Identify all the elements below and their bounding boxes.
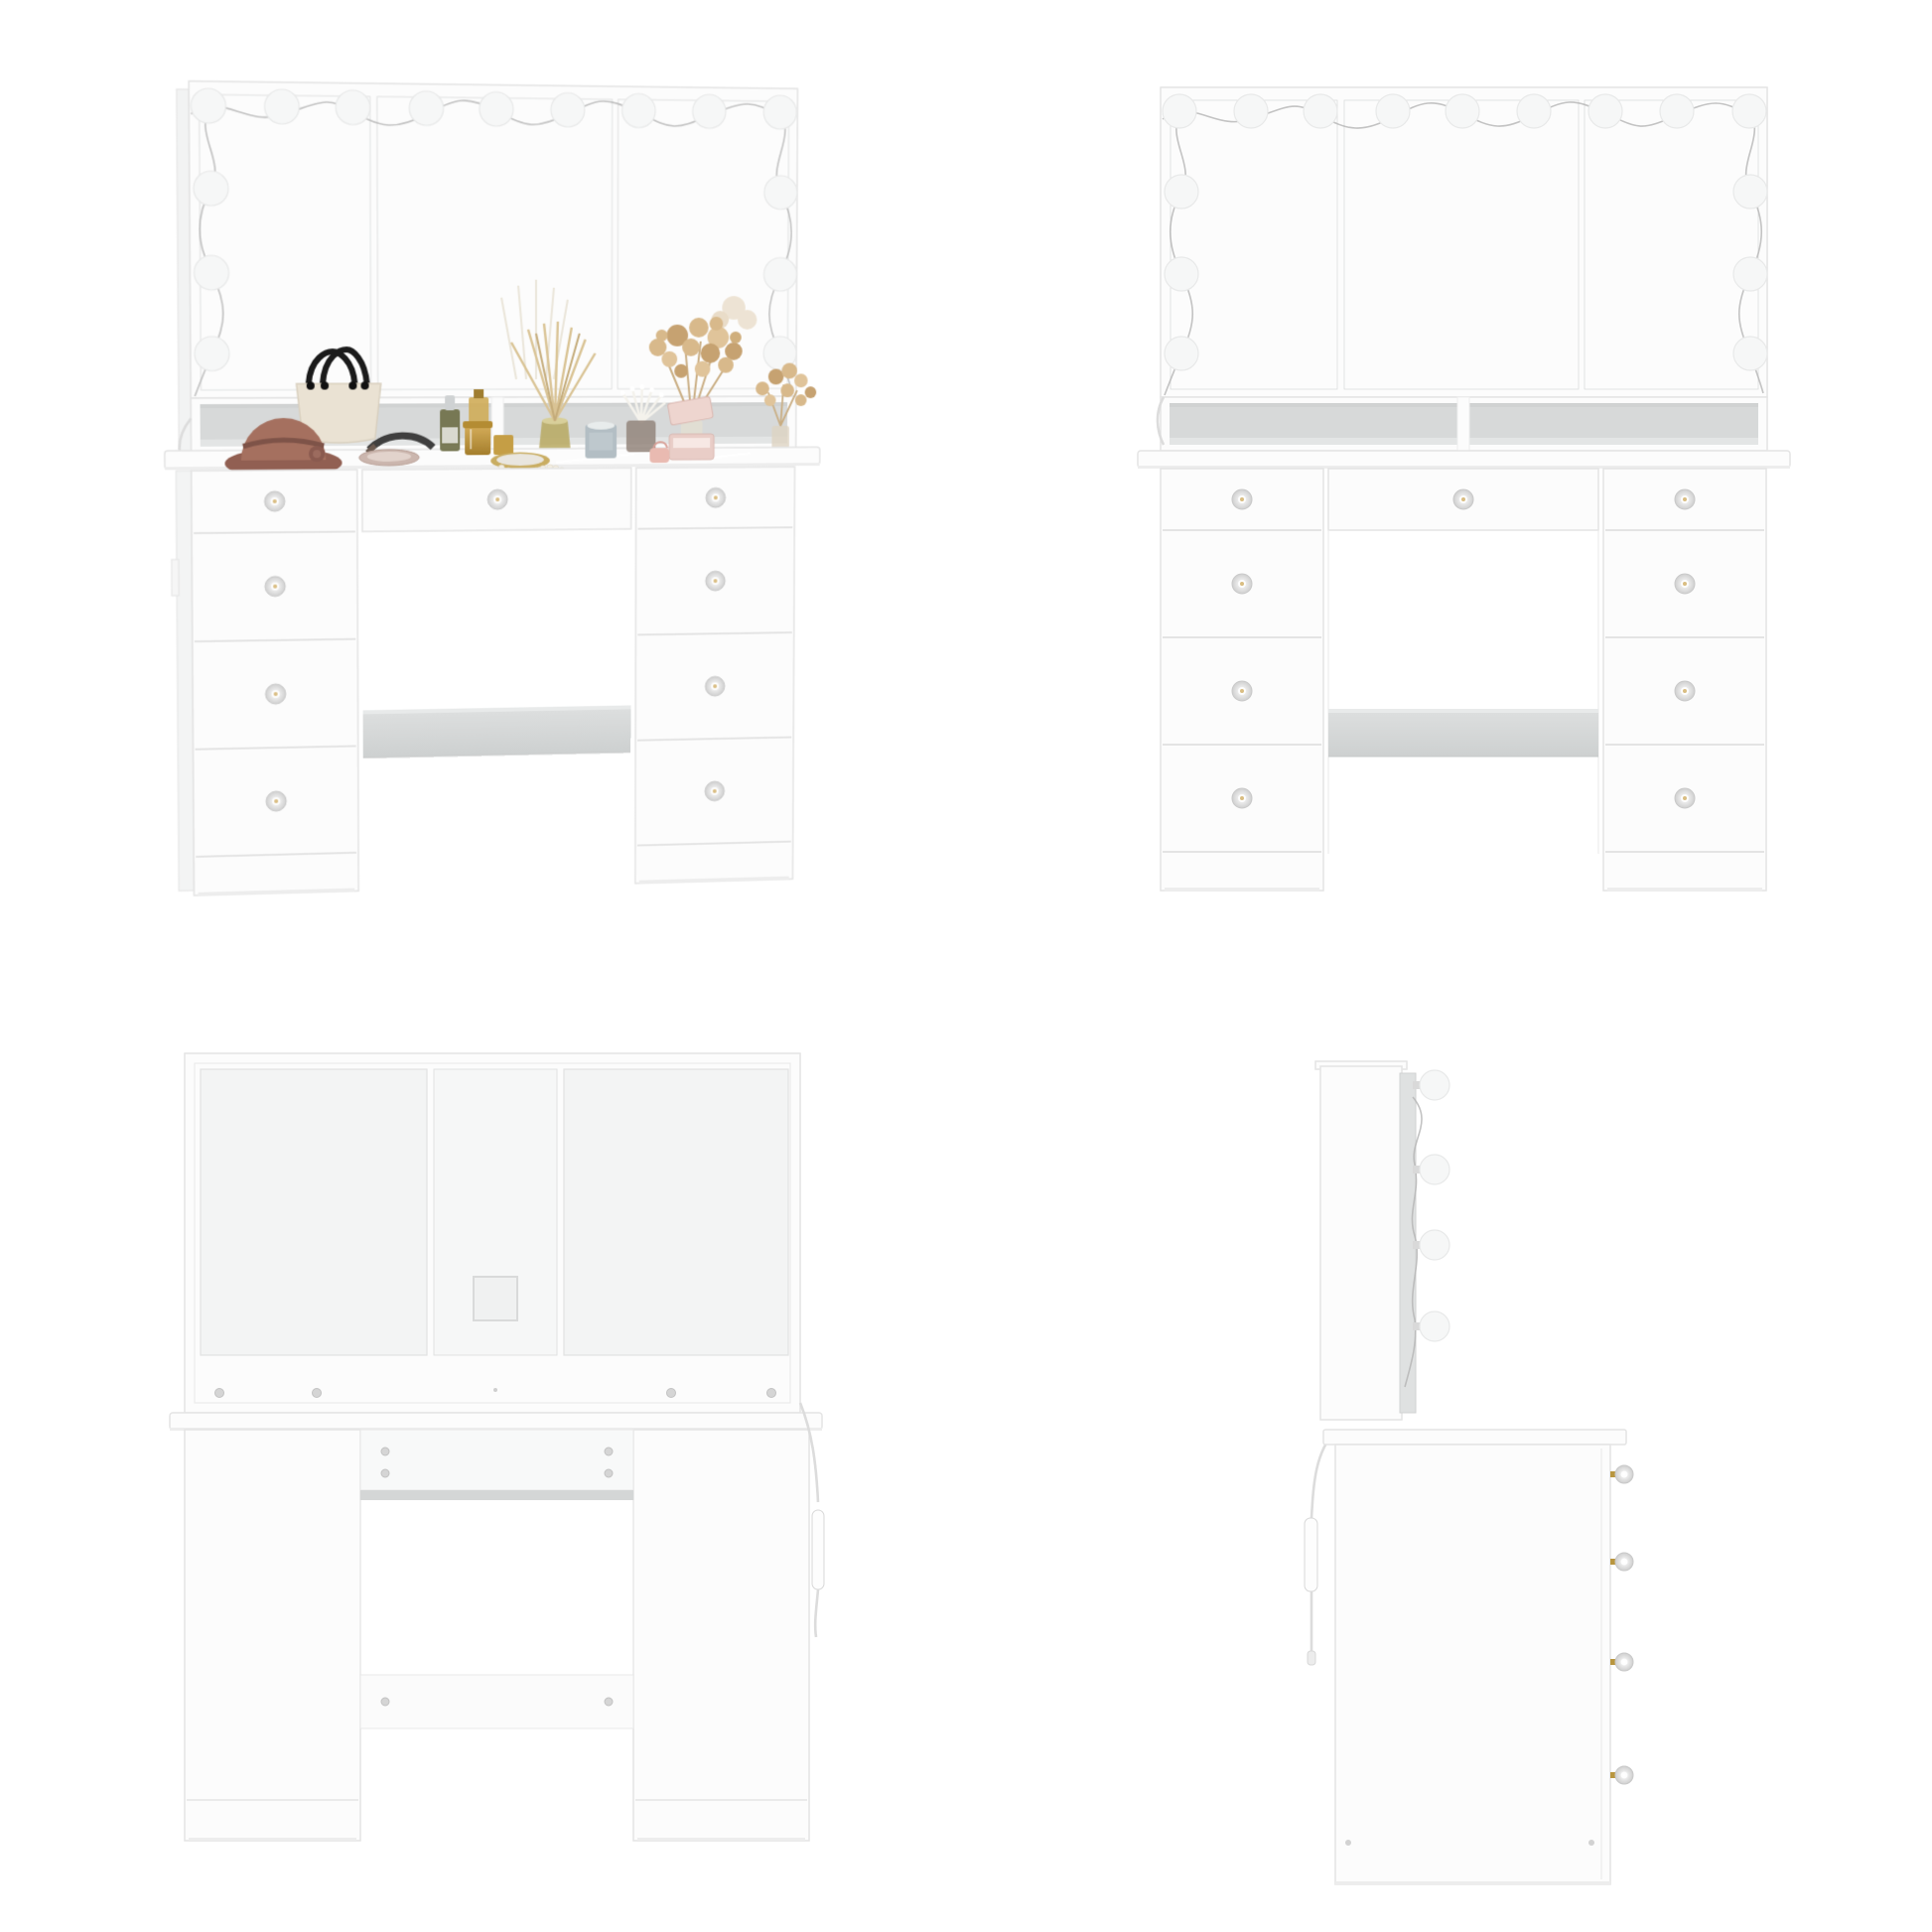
light-bulb — [1234, 94, 1268, 128]
light-bulb — [1163, 94, 1196, 128]
drawer-metal-rail — [360, 1490, 633, 1500]
view-side — [966, 966, 1932, 1932]
light-bulb — [1588, 94, 1622, 128]
desk-side — [1323, 1430, 1633, 1885]
drawer-knob — [265, 576, 285, 596]
drawer-knob — [1675, 574, 1695, 594]
light-bulb — [1420, 1155, 1449, 1184]
mirror-hutch-frame — [1161, 87, 1767, 397]
perspective-tilt-wrapper — [0, 0, 958, 966]
screw — [1588, 1840, 1594, 1846]
light-bulb — [1660, 94, 1694, 128]
tabletop-side-edge — [1323, 1430, 1626, 1445]
decor-powder-tray — [359, 450, 419, 466]
light-bulb — [1376, 94, 1410, 128]
light-bulb — [480, 91, 513, 126]
drawer-knob — [1453, 489, 1473, 509]
light-bulb — [194, 171, 228, 206]
drawer-knob — [487, 489, 507, 509]
back-view-drawing — [0, 966, 966, 1932]
light-bulb — [1165, 257, 1198, 291]
drawer-knob — [1610, 1553, 1633, 1571]
drawer-knob — [705, 676, 724, 696]
view-front — [966, 0, 1932, 966]
desk-back-right-panel — [633, 1430, 809, 1841]
light-bulb — [1420, 1311, 1449, 1341]
view-back — [0, 966, 966, 1932]
drawer-knob — [1675, 489, 1695, 509]
light-bulb — [1165, 337, 1198, 370]
product-image-grid — [0, 0, 1932, 1932]
light-bulbs — [1420, 1070, 1449, 1341]
hutch-back — [185, 1053, 800, 1413]
drawer-knob — [1232, 574, 1252, 594]
drawer-knob — [265, 684, 285, 704]
front-view-drawing — [966, 0, 1932, 966]
light-bulb — [1733, 175, 1767, 208]
desk-body — [1161, 469, 1766, 892]
decor-candle — [585, 422, 617, 459]
knee-shelf — [1328, 709, 1598, 757]
light-bulb — [194, 255, 228, 290]
side-power-strip — [172, 560, 179, 596]
cable-cutout — [474, 1277, 517, 1320]
light-bulb — [409, 91, 443, 126]
knee-shelf — [363, 705, 631, 758]
light-bulb — [264, 89, 299, 124]
drawer-knob — [1232, 681, 1252, 701]
back-panel-right — [564, 1069, 788, 1355]
drawer-knob — [266, 791, 286, 811]
desk-body — [171, 467, 794, 897]
light-bulb — [551, 92, 585, 127]
light-bulb — [191, 88, 225, 123]
drawer-knob — [706, 571, 726, 591]
glass-tabletop — [1138, 451, 1790, 469]
light-bulb — [1165, 175, 1198, 208]
desk-back — [185, 1430, 809, 1841]
left-drawer-tower — [1161, 469, 1323, 891]
open-shelf-compartments — [1161, 397, 1767, 451]
view-front-perspective — [0, 0, 966, 966]
right-drawer-tower — [1603, 469, 1766, 891]
tabletop-back-edge — [170, 1413, 822, 1431]
light-bulb — [764, 176, 797, 209]
light-bulb — [763, 257, 796, 291]
side-view-drawing — [966, 966, 1932, 1932]
front-perspective-drawing — [0, 0, 958, 966]
drawer-knob — [1232, 489, 1252, 509]
mirror-side — [1315, 1061, 1449, 1420]
drawer-knob — [1610, 1766, 1633, 1784]
light-bulb — [1446, 94, 1479, 128]
drawer-knob — [1675, 681, 1695, 701]
light-bulb — [693, 94, 727, 128]
desk-back-left-panel — [185, 1430, 360, 1841]
drawer-knob — [1610, 1465, 1633, 1483]
light-bulb — [622, 93, 656, 128]
desk-side-panel — [1335, 1445, 1610, 1884]
drawer-knob — [705, 781, 724, 801]
drawer-knob — [1232, 788, 1252, 808]
drawer-knob — [264, 491, 284, 511]
mirror-back-board — [1320, 1066, 1402, 1420]
inline-switch — [1305, 1518, 1317, 1591]
light-bulb — [1304, 94, 1337, 128]
power-cord-with-switch — [1305, 1431, 1335, 1665]
screw — [1345, 1840, 1351, 1846]
light-bulb — [1733, 257, 1767, 291]
light-bulb — [1732, 94, 1766, 128]
drawer-knob — [1675, 788, 1695, 808]
light-bulb — [336, 90, 370, 125]
cubby-divider — [1457, 397, 1469, 451]
light-bulb — [1420, 1230, 1449, 1260]
light-bulb — [1733, 337, 1767, 370]
upper-back-panel — [360, 1430, 633, 1490]
drawer-knob — [1610, 1653, 1633, 1671]
plug-tip — [1308, 1651, 1315, 1665]
light-bulb — [1517, 94, 1551, 128]
lower-cross-rail — [360, 1675, 633, 1728]
light-bulb — [1420, 1070, 1449, 1100]
light-bulb — [763, 95, 796, 129]
back-panel-left — [201, 1069, 427, 1355]
inline-switch — [812, 1510, 824, 1589]
light-bulb — [195, 337, 229, 371]
drawer-knob — [706, 487, 726, 507]
